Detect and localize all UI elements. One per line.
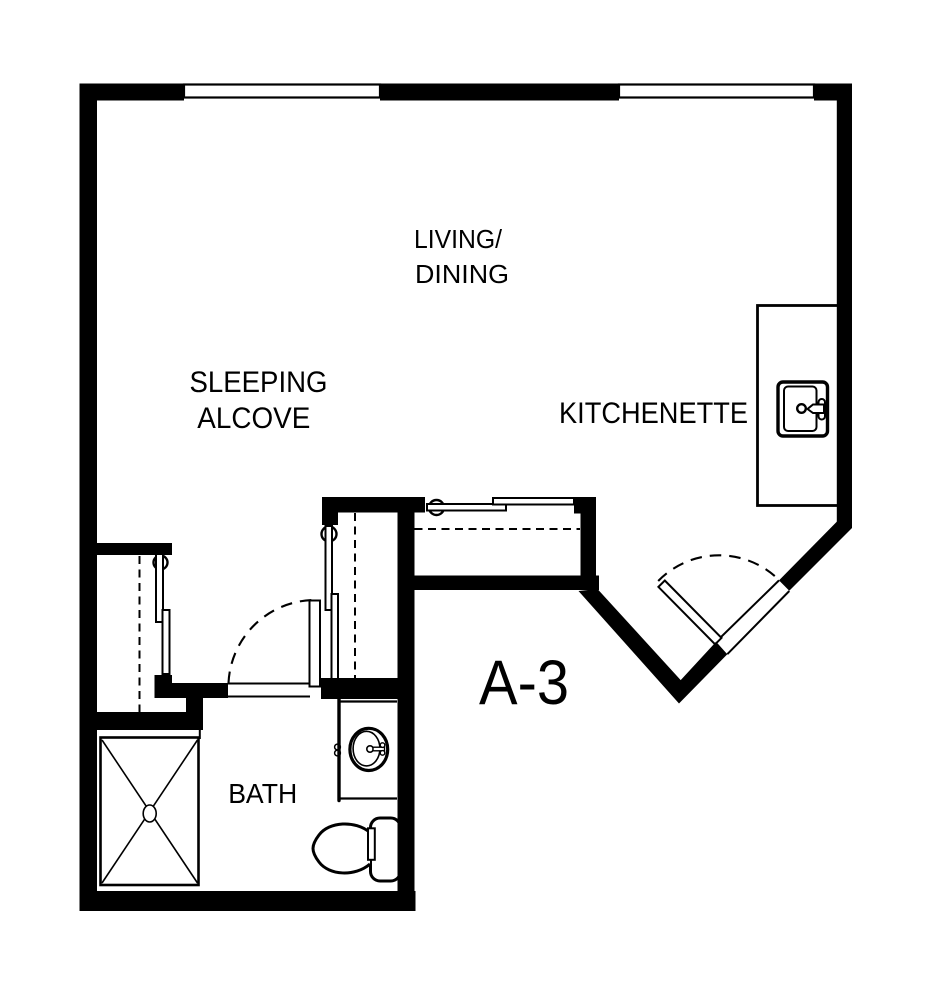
svg-text:DINING: DINING xyxy=(415,259,509,289)
svg-text:LIVING/: LIVING/ xyxy=(414,224,503,254)
svg-text:BATH: BATH xyxy=(228,778,297,809)
svg-text:ALCOVE: ALCOVE xyxy=(197,402,310,435)
svg-text:SLEEPING: SLEEPING xyxy=(190,366,328,399)
svg-text:A-3: A-3 xyxy=(479,648,569,718)
svg-text:KITCHENETTE: KITCHENETTE xyxy=(559,397,748,430)
